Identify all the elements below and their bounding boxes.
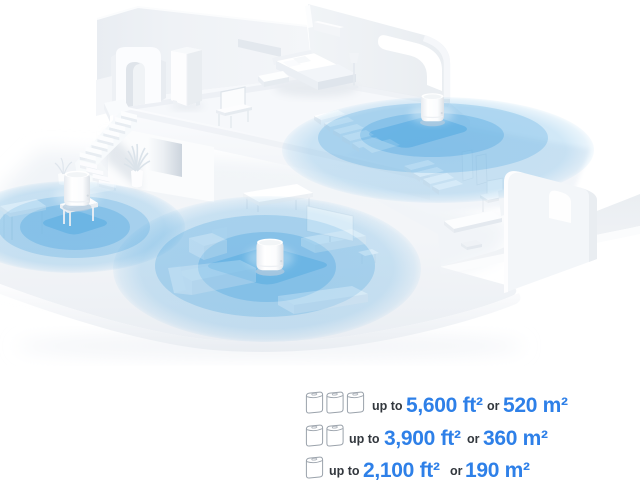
svg-text:or: or: [450, 464, 463, 478]
svg-text:5,600 ft²: 5,600 ft²: [406, 394, 483, 417]
svg-text:or: or: [487, 399, 500, 413]
svg-text:3,900 ft²: 3,900 ft²: [384, 427, 461, 450]
svg-text:up to: up to: [372, 399, 403, 413]
svg-text:190 m²: 190 m²: [465, 459, 530, 480]
svg-text:520 m²: 520 m²: [503, 394, 568, 417]
svg-text:up to: up to: [329, 464, 360, 478]
svg-text:or: or: [467, 432, 480, 446]
svg-text:360 m²: 360 m²: [483, 427, 548, 450]
svg-text:up to: up to: [349, 432, 380, 446]
svg-text:2,100 ft²: 2,100 ft²: [363, 459, 440, 480]
